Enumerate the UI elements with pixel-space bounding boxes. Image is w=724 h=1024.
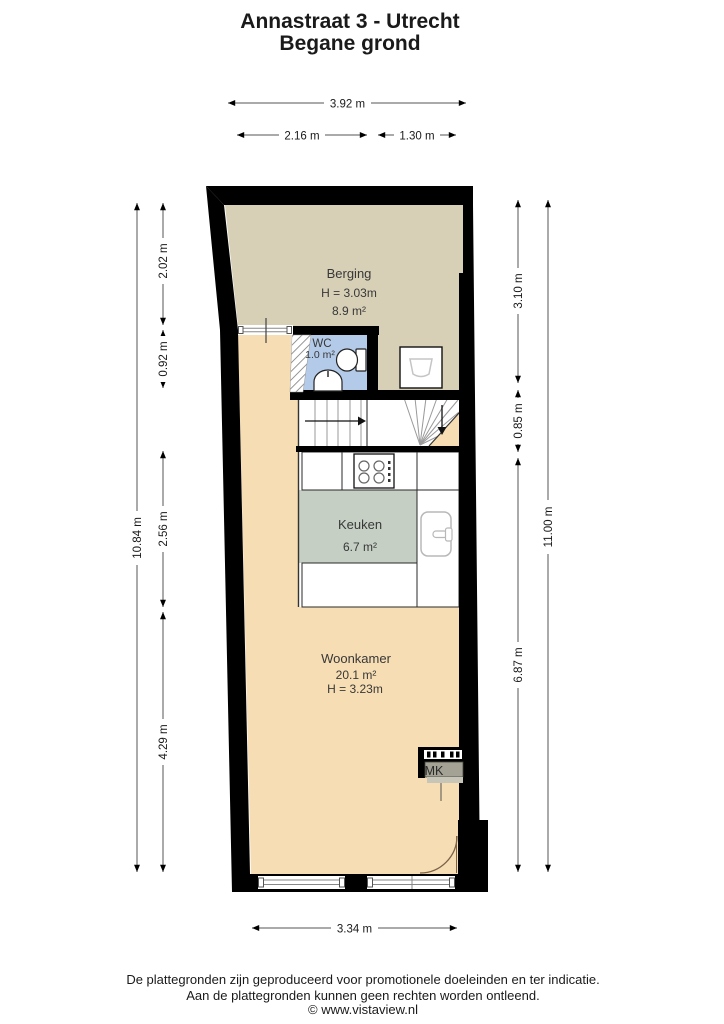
dim-right-seg2-label: 0.85 m	[512, 398, 526, 444]
svg-text:3.10 m: 3.10 m	[513, 273, 525, 308]
toilet-icon	[337, 349, 367, 371]
page-subtitle: Begane grond	[279, 32, 420, 55]
woonkamer-height: H = 3.23m	[327, 682, 383, 696]
dim-right-seg1-label: 3.10 m	[512, 268, 526, 314]
svg-text:0.92 m: 0.92 m	[158, 341, 170, 376]
berging-area: 8.9 m²	[332, 304, 366, 318]
svg-text:0.85 m: 0.85 m	[513, 403, 525, 438]
dim-top-left: 2.16 m	[284, 131, 319, 143]
page-title: Annastraat 3 - Utrecht	[240, 10, 459, 33]
wc-area: 1.0 m²	[305, 349, 335, 361]
dim-left-seg3-label: 2.56 m	[157, 506, 171, 552]
svg-text:10.84 m: 10.84 m	[132, 517, 144, 559]
woonkamer-label: Woonkamer	[321, 651, 392, 666]
kitchen-sink-icon	[421, 512, 452, 556]
keuken-label: Keuken	[338, 517, 382, 532]
svg-text:4.29 m: 4.29 m	[158, 724, 170, 759]
berging-basin	[400, 347, 442, 388]
footer-website: © www.vistaview.nl	[308, 1002, 418, 1017]
cooktop-icon	[354, 454, 394, 488]
mk-label: MK	[425, 764, 444, 778]
wall-top	[206, 186, 473, 205]
wall-wc-top	[291, 326, 379, 335]
berging-label: Berging	[327, 266, 372, 281]
wall-right-corner	[458, 820, 488, 876]
svg-text:2.02 m: 2.02 m	[158, 243, 170, 278]
wall-kitchen-top	[296, 446, 459, 452]
footer-line-2: Aan de plattegronden kunnen geen rechten…	[186, 988, 539, 1003]
svg-text:2.56 m: 2.56 m	[158, 511, 170, 546]
wc-sink-icon	[314, 370, 342, 391]
floorplan-svg: Annastraat 3 - Utrecht Begane grond	[0, 0, 724, 1024]
title-block: Annastraat 3 - Utrecht Begane grond	[240, 10, 459, 55]
dim-right-seg3-label: 6.87 m	[512, 642, 526, 688]
window-front-left	[258, 876, 345, 889]
dim-bottom-total: 3.34 m	[337, 924, 372, 936]
dim-left-seg2-label: 0.92 m	[157, 336, 171, 382]
kitchen-counter-bottom	[302, 563, 417, 607]
window-front-right	[367, 876, 455, 889]
berging-height: H = 3.03m	[321, 286, 377, 300]
dim-left-total-label: 10.84 m	[131, 511, 145, 565]
dim-left-seg4-label: 4.29 m	[157, 719, 171, 765]
keuken-area: 6.7 m²	[343, 540, 377, 554]
dim-top-right: 1.30 m	[399, 131, 434, 143]
floorplan-page: Annastraat 3 - Utrecht Begane grond	[0, 0, 724, 1024]
woonkamer-area: 20.1 m²	[336, 668, 377, 682]
dim-right-total-label: 11.00 m	[542, 500, 556, 554]
footer-line-1: De plattegronden zijn geproduceerd voor …	[126, 972, 599, 987]
dim-top-total: 3.92 m	[330, 99, 365, 111]
wall-wc-right	[367, 335, 378, 392]
footer-disclaimer: De plattegronden zijn geproduceerd voor …	[126, 972, 599, 1017]
svg-text:6.87 m: 6.87 m	[513, 647, 525, 682]
svg-text:11.00 m: 11.00 m	[543, 507, 555, 548]
staircase	[298, 398, 459, 446]
dim-left-seg1-label: 2.02 m	[157, 238, 171, 284]
